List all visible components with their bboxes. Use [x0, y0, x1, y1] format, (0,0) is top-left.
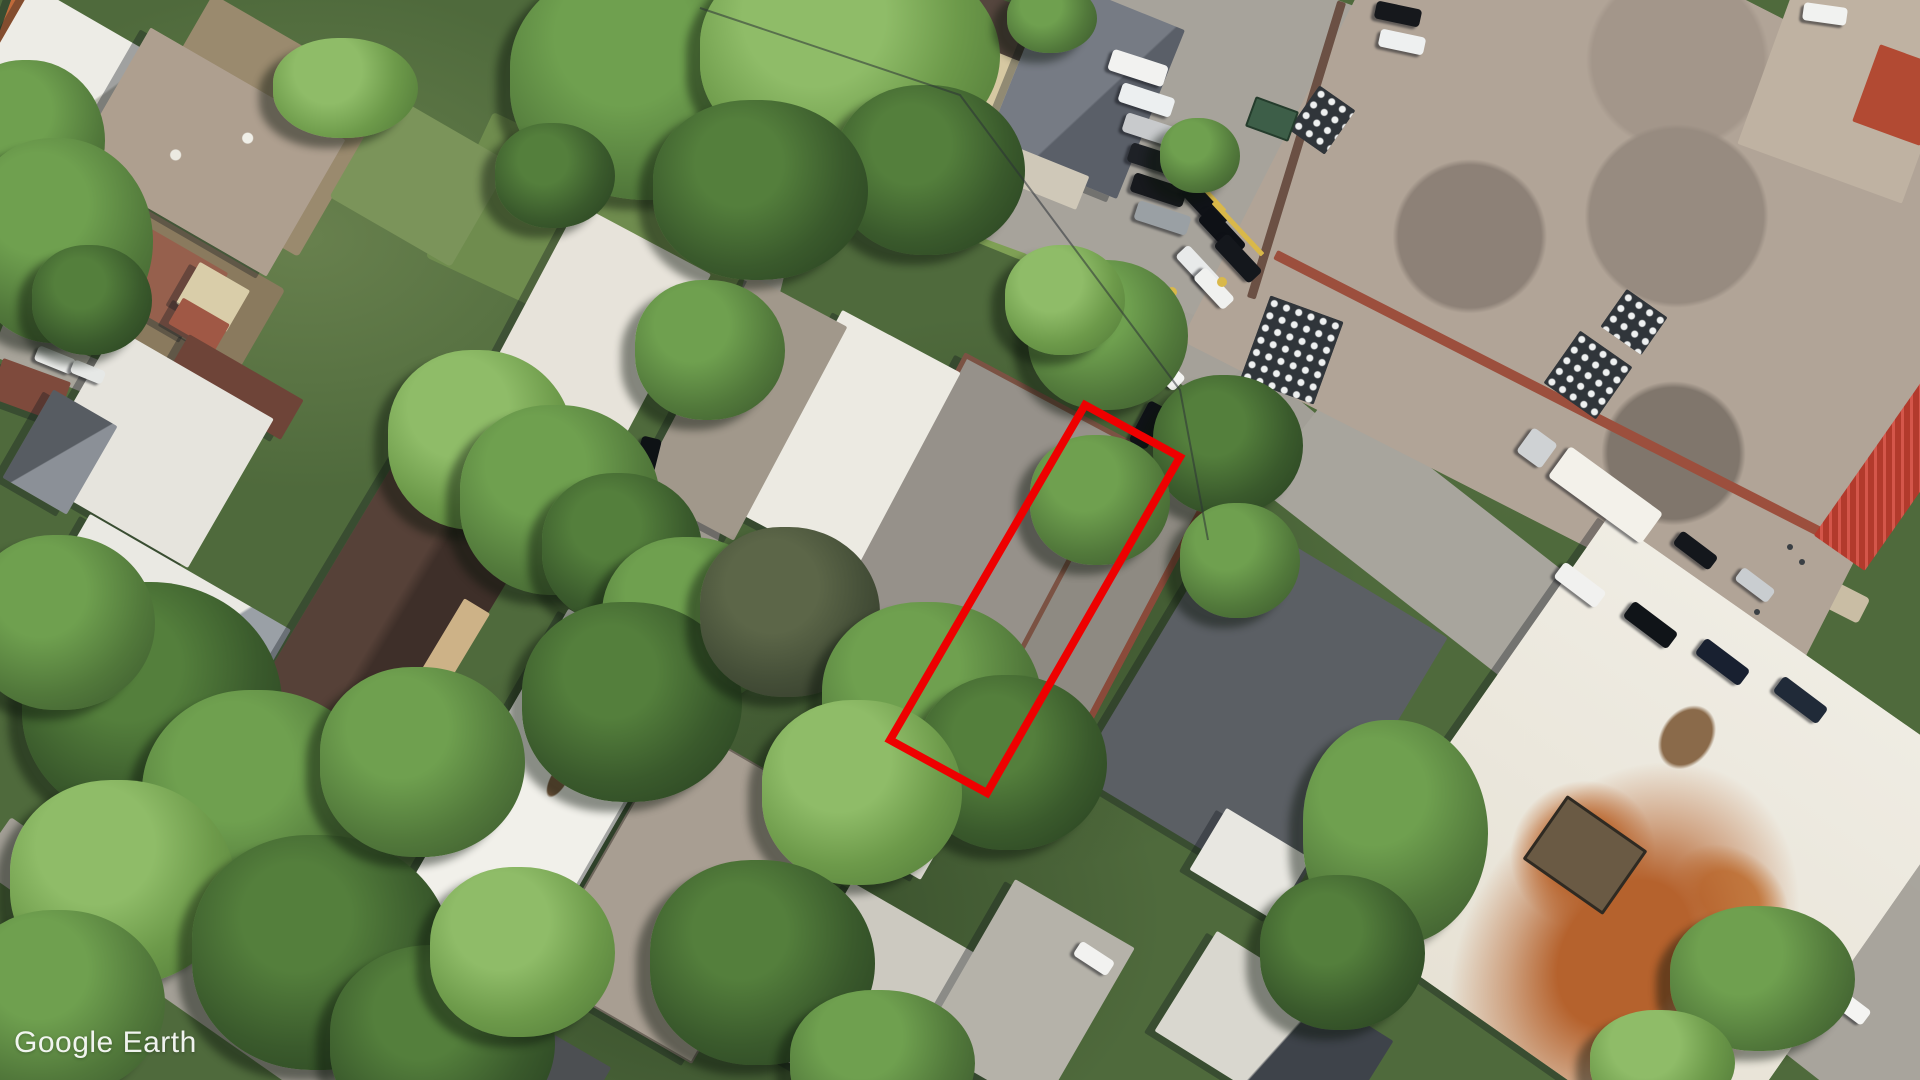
tree [1030, 435, 1170, 565]
tree [320, 667, 525, 857]
pedestrian [1754, 609, 1760, 615]
satellite-canvas[interactable]: Google Earth [0, 0, 1920, 1080]
tree [273, 38, 418, 138]
tree [1153, 375, 1303, 515]
tree [653, 100, 868, 280]
yellow-dot [1217, 277, 1227, 287]
pedestrian [1787, 544, 1793, 550]
tree [495, 123, 615, 228]
tree [430, 867, 615, 1037]
tree [635, 280, 785, 420]
google-earth-watermark: Google Earth [14, 1026, 197, 1060]
tree [1160, 118, 1240, 193]
tree [1005, 245, 1125, 355]
tree [32, 245, 152, 355]
tree [762, 700, 962, 885]
tree [1180, 503, 1300, 618]
pedestrian [1799, 559, 1805, 565]
tree [1260, 875, 1425, 1030]
